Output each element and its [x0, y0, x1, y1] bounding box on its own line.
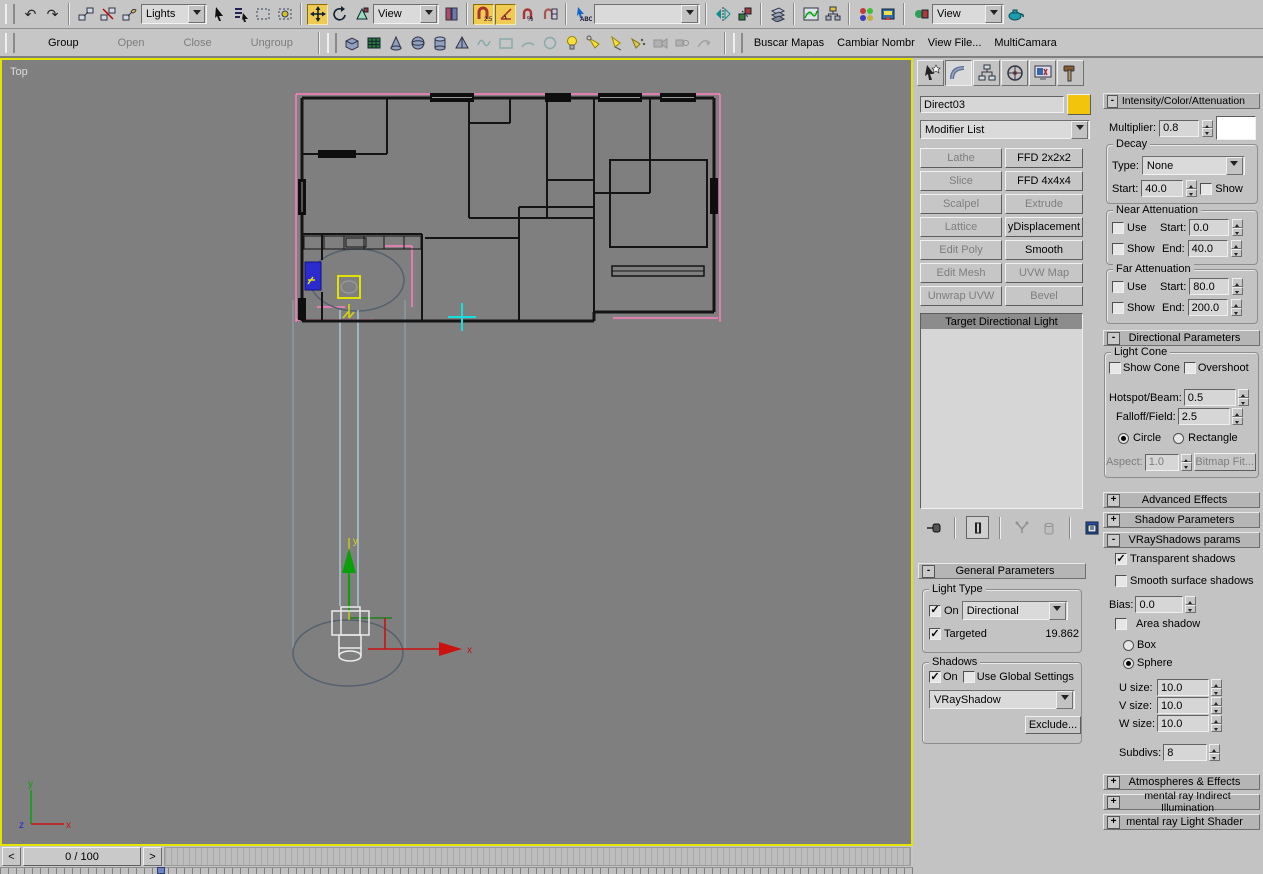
modifier-button-lathe[interactable]: Lathe — [920, 148, 1002, 168]
spline-icon[interactable] — [474, 32, 495, 53]
spinner-snap-icon[interactable] — [539, 4, 560, 25]
v-size-spinner[interactable] — [1211, 697, 1222, 714]
select-and-scale-icon[interactable] — [351, 4, 372, 25]
viewport-top[interactable]: y x y x z Top — [0, 58, 913, 846]
pyramid-primitive-icon[interactable] — [452, 32, 473, 53]
dropdown-arrow-icon[interactable] — [985, 5, 1002, 23]
time-slider-handle[interactable]: 0 / 100 — [23, 847, 141, 866]
reference-coordinate-dropdown[interactable]: View — [373, 4, 439, 24]
separator — [466, 3, 468, 25]
trajectory-icon[interactable] — [694, 32, 715, 53]
circle-shape-icon[interactable] — [540, 32, 561, 53]
rollout-title: mental ray Light Shader — [1124, 816, 1245, 828]
modifier-button-uvw-map[interactable]: UVW Map — [1005, 263, 1083, 283]
cylinder-primitive-icon[interactable] — [430, 32, 451, 53]
group-label: Shadows — [929, 656, 980, 668]
rollout-mental-ray-indirect-illumination[interactable]: + mental ray Indirect Illumination — [1103, 794, 1260, 810]
decay-type-label: Type: — [1112, 160, 1139, 172]
rollout-title: mental ray Indirect Illumination — [1120, 790, 1255, 814]
near-use-checkbox[interactable] — [1112, 222, 1124, 234]
expand-icon[interactable]: + — [1107, 796, 1120, 809]
next-frame-button[interactable]: > — [143, 847, 162, 866]
v-size-field[interactable]: 10.0 — [1157, 697, 1209, 714]
light-source-wireframe — [332, 607, 369, 661]
modifier-button-lattice[interactable]: Lattice — [920, 217, 1002, 237]
rollout-intensity-color-attenuation[interactable]: - Intensity/Color/Attenuation — [1103, 93, 1260, 109]
multicamara-button[interactable]: MultiCamara — [988, 32, 1062, 54]
command-panel: Direct03 Modifier List Lathe FFD 2x2x2 S… — [913, 58, 1263, 874]
select-object-icon[interactable] — [208, 4, 229, 25]
use-pivot-center-icon[interactable] — [440, 4, 461, 25]
w-size-value: 10.0 — [1161, 718, 1182, 730]
selection-region-icon[interactable] — [252, 4, 273, 25]
smooth-surface-shadows-checkbox[interactable] — [1115, 575, 1127, 587]
separator — [954, 517, 956, 539]
dropdown-arrow-icon[interactable] — [1071, 121, 1088, 139]
viewport-canvas[interactable]: y x y x z — [2, 60, 911, 844]
arc-shape-icon[interactable] — [518, 32, 539, 53]
use-global-settings-label: Use Global Settings — [977, 671, 1074, 683]
near-end-label: End: — [1162, 243, 1185, 255]
blue-object — [305, 262, 321, 290]
sphere-primitive-icon[interactable] — [408, 32, 429, 53]
near-end-value: 40.0 — [1192, 243, 1213, 255]
material-editor-icon[interactable] — [855, 4, 876, 25]
light-on-label: On — [944, 605, 959, 617]
modifier-button-ffd4x4x4[interactable]: FFD 4x4x4 — [1005, 171, 1083, 191]
modifier-button-smooth[interactable]: Smooth — [1005, 240, 1083, 260]
command-panel-tabs — [917, 60, 1084, 86]
redo-icon[interactable]: ↷ — [42, 4, 63, 25]
overshoot-checkbox[interactable] — [1184, 362, 1196, 374]
object-name-field[interactable]: Direct03 — [920, 96, 1064, 113]
tab-utilities[interactable] — [1057, 60, 1084, 86]
render-viewport-value: View — [933, 8, 984, 20]
gizmo-x-label: x — [467, 645, 472, 656]
near-start-field[interactable]: 0.0 — [1189, 219, 1229, 236]
separator — [999, 517, 1001, 539]
far-start-value: 80.0 — [1193, 281, 1214, 293]
svg-text:2.5: 2.5 — [484, 17, 492, 22]
decay-show-checkbox[interactable] — [1200, 183, 1212, 195]
collapse-icon[interactable]: - — [922, 565, 935, 578]
modifier-button-vraydisplacement[interactable]: yDisplacement — [1005, 217, 1083, 237]
separator — [565, 3, 567, 25]
bitmap-fit-button[interactable]: Bitmap Fit... — [1194, 453, 1256, 471]
bias-spinner[interactable] — [1185, 596, 1196, 613]
rectangle-shape-icon[interactable] — [496, 32, 517, 53]
tab-motion[interactable] — [1001, 60, 1028, 86]
circle-radio[interactable] — [1118, 433, 1129, 444]
remove-modifier-icon[interactable] — [1038, 517, 1059, 538]
v-size-value: 10.0 — [1161, 700, 1182, 712]
far-end-field[interactable]: 200.0 — [1188, 299, 1228, 316]
expand-icon[interactable]: + — [1107, 816, 1120, 829]
separator — [705, 3, 707, 25]
far-use-checkbox[interactable] — [1112, 281, 1124, 293]
smooth-surface-shadows-label: Smooth surface shadows — [1130, 575, 1254, 587]
world-x-label: x — [66, 820, 71, 831]
world-z-label: z — [19, 820, 24, 831]
group-label: Light Type — [929, 583, 986, 595]
modifier-stack[interactable]: Target Directional Light — [920, 313, 1083, 509]
overshoot-label: Overshoot — [1198, 362, 1249, 374]
far-end-label: End: — [1162, 302, 1185, 314]
shadows-on-checkbox[interactable] — [929, 671, 941, 683]
rollout-general-parameters[interactable]: - General Parameters — [918, 563, 1086, 579]
separator — [1069, 517, 1071, 539]
bias-value: 0.0 — [1139, 599, 1154, 611]
rollout-vrayshadows-params[interactable]: - VRayShadows params — [1103, 532, 1260, 548]
shadows-on-label: On — [943, 671, 958, 683]
rollout-mental-ray-light-shader[interactable]: + mental ray Light Shader — [1103, 814, 1260, 830]
time-slider-track[interactable] — [164, 847, 911, 866]
subdivs-spinner[interactable] — [1209, 744, 1220, 761]
percent-snap-icon[interactable]: % — [517, 4, 538, 25]
reference-coordinate-value: View — [374, 8, 419, 20]
falloff-field[interactable]: 2.5 — [1178, 408, 1230, 425]
group-label: Far Attenuation — [1113, 263, 1194, 275]
decay-start-label: Start: — [1112, 183, 1138, 195]
expand-icon[interactable]: + — [1107, 514, 1120, 527]
bias-field[interactable]: 0.0 — [1135, 596, 1183, 613]
aspect-field[interactable]: 1.0 — [1145, 454, 1179, 471]
render-type-icon[interactable] — [910, 4, 931, 25]
light-color-swatch[interactable] — [1216, 116, 1256, 140]
x-axis-line — [368, 618, 439, 649]
object-name-value: Direct03 — [924, 99, 965, 111]
near-start-value: 0.0 — [1193, 222, 1208, 234]
world-y-label: y — [28, 779, 33, 790]
shadow-plugin-value: VRayShadow — [930, 694, 1055, 706]
aspect-label: Aspect: — [1106, 456, 1143, 468]
cone-primitive-icon[interactable] — [386, 32, 407, 53]
modifier-list-dropdown[interactable]: Modifier List — [920, 120, 1090, 139]
select-by-name-icon[interactable] — [230, 4, 251, 25]
directional-light-icon[interactable] — [606, 32, 627, 53]
dropdown-arrow-icon[interactable] — [1226, 157, 1243, 175]
collapse-icon[interactable]: - — [1107, 332, 1120, 345]
falloff-label: Falloff/Field: — [1116, 411, 1176, 423]
keyboard-override-icon[interactable]: ABC — [572, 4, 593, 25]
multiplier-value: 0.8 — [1163, 122, 1178, 134]
svg-text:%: % — [527, 16, 533, 22]
box-radio[interactable] — [1123, 640, 1134, 651]
make-unique-icon[interactable] — [1011, 517, 1032, 538]
decay-type-value: None — [1143, 160, 1225, 172]
separator — [724, 32, 726, 54]
snap-toggle-25-icon[interactable]: 2.5 — [473, 4, 494, 25]
named-selection-dropdown[interactable] — [594, 4, 700, 24]
undo-icon[interactable]: ↶ — [20, 4, 41, 25]
light-type-value: Directional — [963, 605, 1048, 617]
circle-label: Circle — [1133, 432, 1161, 444]
view-file-button[interactable]: View File... — [922, 32, 988, 54]
multiplier-spinner[interactable] — [1202, 120, 1213, 137]
stack-toolbar — [923, 516, 1102, 539]
near-end-spinner[interactable] — [1231, 240, 1242, 257]
modifier-button-unwrap-uvw[interactable]: Unwrap UVW — [920, 286, 1002, 306]
render-viewport-dropdown[interactable]: View — [932, 4, 1004, 24]
subdivs-value: 8 — [1167, 747, 1173, 759]
group-label: Light Cone — [1111, 346, 1170, 358]
modifier-list-value: Modifier List — [921, 124, 1070, 136]
curve-editor-icon[interactable] — [800, 4, 821, 25]
track-bar-marker[interactable] — [157, 867, 165, 874]
rollout-title: VRayShadows params — [1124, 534, 1245, 546]
area-shadow-checkbox[interactable] — [1115, 618, 1127, 630]
cyan-marker-cross — [448, 303, 476, 331]
unlink-selection-icon[interactable] — [97, 4, 118, 25]
rollout-title: Atmospheres & Effects — [1124, 776, 1245, 788]
subdivs-label: Subdivs: — [1119, 747, 1161, 759]
pin-stack-icon[interactable] — [923, 517, 944, 538]
toolbar-drag-handle[interactable] — [733, 33, 743, 53]
modifier-button-ffd2x2x2[interactable]: FFD 2x2x2 — [1005, 148, 1083, 168]
separator — [903, 3, 905, 25]
rollout-directional-parameters[interactable]: - Directional Parameters — [1103, 330, 1260, 346]
modifier-button-grid: Lathe FFD 2x2x2 Slice FFD 4x4x4 Scalpel … — [920, 148, 1083, 306]
gizmo-y-label: y — [353, 536, 358, 547]
hotspot-spinner[interactable] — [1238, 389, 1249, 406]
cambiar-nombre-button[interactable]: Cambiar Nombr — [831, 32, 921, 54]
rectangle-label: Rectangle — [1188, 432, 1238, 444]
group-button[interactable]: Group — [38, 32, 89, 54]
x-axis-arrow[interactable] — [439, 642, 462, 656]
spotlight-icon[interactable] — [584, 32, 605, 53]
targeted-checkbox[interactable] — [929, 628, 941, 640]
transparent-shadows-label: Transparent shadows — [1130, 553, 1235, 565]
subdivs-field[interactable]: 8 — [1163, 744, 1207, 761]
modifier-button-slice[interactable]: Slice — [920, 171, 1002, 191]
modifier-button-edit-mesh[interactable]: Edit Mesh — [920, 263, 1002, 283]
angle-snap-icon[interactable] — [495, 4, 516, 25]
multiplier-field[interactable]: 0.8 — [1159, 120, 1199, 137]
collapse-icon[interactable]: - — [1107, 95, 1118, 108]
falloff-value: 2.5 — [1182, 411, 1197, 423]
separator — [318, 32, 320, 54]
aspect-spinner[interactable] — [1181, 454, 1192, 471]
select-and-link-icon[interactable] — [75, 4, 96, 25]
exclude-button[interactable]: Exclude... — [1025, 716, 1081, 734]
decay-type-dropdown[interactable]: None — [1142, 156, 1245, 175]
use-global-settings-checkbox[interactable] — [963, 671, 975, 683]
dropdown-arrow-icon[interactable] — [188, 5, 205, 23]
dropdown-arrow-icon[interactable] — [1056, 691, 1073, 709]
time-slider-bar: < 0 / 100 > — [0, 846, 913, 867]
falloff-spinner[interactable] — [1232, 408, 1243, 425]
plane-primitive-icon[interactable] — [364, 32, 385, 53]
window-crossing-icon[interactable] — [274, 4, 295, 25]
mirror-icon[interactable] — [712, 4, 733, 25]
render-setup-icon[interactable] — [877, 4, 898, 25]
separator — [300, 3, 302, 25]
multiplier-label: Multiplier: — [1109, 122, 1156, 134]
modifier-button-extrude[interactable]: Extrude — [1005, 194, 1083, 214]
decay-start-field[interactable]: 40.0 — [1141, 180, 1183, 197]
u-size-value: 10.0 — [1161, 682, 1182, 694]
separator — [848, 3, 850, 25]
expand-icon[interactable]: + — [1107, 494, 1120, 507]
group-label: Near Attenuation — [1113, 204, 1201, 216]
near-show-checkbox[interactable] — [1112, 243, 1124, 255]
aspect-value: 1.0 — [1149, 456, 1164, 468]
svg-text:ABC: ABC — [580, 17, 592, 22]
layer-manager-icon[interactable] — [767, 4, 788, 25]
world-axis-tripod: y x z — [19, 779, 71, 831]
u-size-spinner[interactable] — [1211, 679, 1222, 696]
directional-light-gizmo[interactable]: y x — [332, 536, 472, 661]
light-type-dropdown[interactable]: Directional — [962, 601, 1068, 620]
modifier-button-scalpel[interactable]: Scalpel — [920, 194, 1002, 214]
u-size-label: U size: — [1119, 682, 1155, 694]
far-start-spinner[interactable] — [1232, 278, 1243, 295]
rectangle-radio[interactable] — [1173, 433, 1184, 444]
main-toolbar: ↶ ↷ Lights View 2.5 % ABC — [0, 0, 1263, 29]
far-start-field[interactable]: 80.0 — [1189, 278, 1229, 295]
track-bar[interactable] — [0, 867, 913, 874]
bitmap-fit-label: Bitmap Fit... — [1195, 456, 1254, 468]
targeted-label: Targeted — [944, 628, 987, 640]
expand-icon[interactable]: + — [1107, 776, 1120, 789]
secondary-toolbar: Group Open Close Ungroup Buscar Mapas Ca… — [0, 29, 1263, 58]
rollout-title: Shadow Parameters — [1124, 514, 1245, 526]
bias-label: Bias: — [1109, 599, 1133, 611]
rollout-title: Intensity/Color/Attenuation — [1122, 95, 1245, 107]
light-falloff-icon[interactable] — [628, 32, 649, 53]
light-on-checkbox[interactable] — [929, 605, 941, 617]
separator — [68, 3, 70, 25]
rollout-advanced-effects[interactable]: + Advanced Effects — [1103, 492, 1260, 508]
decay-start-value: 40.0 — [1145, 183, 1166, 195]
box-label: Box — [1137, 639, 1156, 651]
target-distance-value: 19.862 — [1045, 628, 1079, 640]
previous-frame-button[interactable]: < — [2, 847, 21, 866]
decay-show-label: Show — [1215, 183, 1243, 195]
dropdown-arrow-icon[interactable] — [681, 5, 698, 23]
sphere-radio[interactable] — [1123, 658, 1134, 669]
tab-create[interactable] — [917, 60, 944, 86]
tab-hierarchy[interactable] — [973, 60, 1000, 86]
separator — [760, 3, 762, 25]
dropdown-arrow-icon[interactable] — [1049, 602, 1066, 620]
open-group-button[interactable]: Open — [108, 32, 155, 54]
viewport-label[interactable]: Top — [10, 66, 28, 78]
separator — [793, 3, 795, 25]
modifier-button-bevel[interactable]: Bevel — [1005, 286, 1083, 306]
near-use-label: Use — [1127, 222, 1157, 234]
floor-plan-walls — [302, 98, 714, 321]
decay-start-spinner[interactable] — [1186, 180, 1197, 197]
light-type-group: Light Type — [922, 589, 1082, 653]
quick-render-teapot-icon[interactable] — [1005, 4, 1026, 25]
w-size-spinner[interactable] — [1211, 715, 1222, 732]
area-shadow-label: Area shadow — [1136, 618, 1200, 630]
exclude-label: Exclude... — [1029, 719, 1077, 731]
far-show-label: Show — [1127, 302, 1159, 314]
toolbar-drag-handle[interactable] — [5, 4, 15, 24]
box-primitive-icon[interactable] — [342, 32, 363, 53]
rollout-title: Directional Parameters — [1124, 332, 1245, 344]
transparent-shadows-checkbox[interactable] — [1115, 553, 1127, 565]
w-size-field[interactable]: 10.0 — [1157, 715, 1209, 732]
far-show-checkbox[interactable] — [1112, 302, 1124, 314]
select-and-move-icon[interactable] — [307, 4, 328, 25]
w-size-label: W size: — [1119, 718, 1155, 730]
selection-filter-value: Lights — [142, 8, 187, 20]
configure-modifier-sets-icon[interactable] — [1081, 517, 1102, 538]
buscar-mapas-button[interactable]: Buscar Mapas — [748, 32, 830, 54]
dropdown-arrow-icon[interactable] — [420, 5, 437, 23]
selection-filter-dropdown[interactable]: Lights — [141, 4, 207, 24]
rollout-title: Advanced Effects — [1124, 494, 1245, 506]
collapse-icon[interactable]: - — [1107, 534, 1120, 547]
close-group-button[interactable]: Close — [174, 32, 222, 54]
far-start-label: Start: — [1160, 281, 1186, 293]
rollout-atmospheres-effects[interactable]: + Atmospheres & Effects — [1103, 774, 1260, 790]
hotspot-value: 0.5 — [1188, 392, 1203, 404]
near-end-field[interactable]: 40.0 — [1188, 240, 1228, 257]
application-window: ↶ ↷ Lights View 2.5 % ABC — [0, 0, 1263, 874]
u-size-field[interactable]: 10.0 — [1157, 679, 1209, 696]
near-start-label: Start: — [1160, 222, 1186, 234]
modifier-button-edit-poly[interactable]: Edit Poly — [920, 240, 1002, 260]
select-and-rotate-icon[interactable] — [329, 4, 350, 25]
shadow-plugin-dropdown[interactable]: VRayShadow — [929, 690, 1075, 709]
near-start-spinner[interactable] — [1232, 219, 1243, 236]
bind-to-spacewarp-icon[interactable] — [119, 4, 140, 25]
object-color-swatch[interactable] — [1067, 94, 1091, 115]
y-axis-arrow[interactable] — [342, 548, 356, 573]
schematic-view-icon[interactable] — [822, 4, 843, 25]
tab-display[interactable] — [1029, 60, 1056, 86]
camera-icon[interactable] — [650, 32, 671, 53]
toolbar-drag-handle[interactable] — [5, 33, 15, 53]
sphere-label: Sphere — [1137, 657, 1172, 669]
far-end-spinner[interactable] — [1231, 299, 1242, 316]
ungroup-button[interactable]: Ungroup — [241, 32, 303, 54]
show-cone-label: Show Cone — [1123, 362, 1180, 374]
hotspot-field[interactable]: 0.5 — [1184, 389, 1236, 406]
far-end-value: 200.0 — [1192, 302, 1220, 314]
rollout-title: General Parameters — [939, 565, 1071, 577]
near-show-label: Show — [1127, 243, 1159, 255]
far-use-label: Use — [1127, 281, 1157, 293]
show-cone-checkbox[interactable] — [1109, 362, 1121, 374]
toolbar-drag-handle[interactable] — [327, 33, 337, 53]
tab-modify[interactable] — [945, 60, 972, 86]
align-icon[interactable] — [734, 4, 755, 25]
show-end-result-icon[interactable] — [966, 516, 989, 539]
light-icon-selection-box — [338, 276, 360, 298]
rollout-shadow-parameters[interactable]: + Shadow Parameters — [1103, 512, 1260, 528]
stack-item-selected[interactable]: Target Directional Light — [921, 314, 1082, 329]
light-create-icon[interactable] — [562, 32, 583, 53]
hotspot-label: Hotspot/Beam: — [1109, 392, 1182, 404]
v-size-label: V size: — [1119, 700, 1155, 712]
target-camera-icon[interactable] — [672, 32, 693, 53]
group-label: Decay — [1113, 138, 1150, 150]
